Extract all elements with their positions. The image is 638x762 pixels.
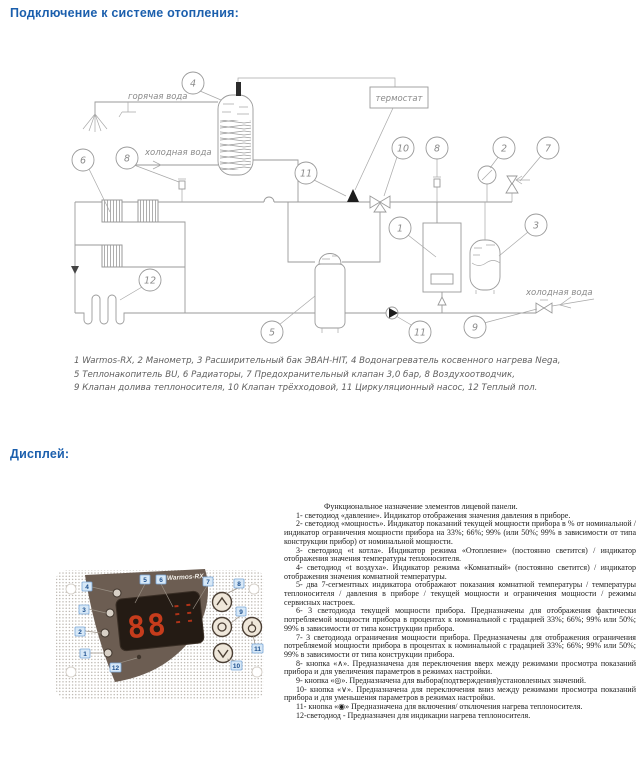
callout-7: 7 — [545, 144, 551, 155]
button-up — [213, 593, 232, 612]
led-t-boiler — [106, 609, 114, 617]
diagram-caption: 1 Warmos-RX, 2 Манометр, 3 Расширительны… — [74, 355, 579, 396]
screw-hole — [252, 667, 262, 677]
dhw-piping: горячая вода холодная вода — [83, 92, 218, 169]
display-digits: 88 — [126, 607, 170, 646]
screw-hole — [249, 584, 259, 594]
description-item-12: 12-светодиод - Предназначен для индикаци… — [284, 712, 636, 721]
caption-line-1: 1 Warmos-RX, 2 Манометр, 3 Расширительны… — [74, 355, 579, 369]
callout-3: 3 — [533, 221, 539, 232]
three-way-valve — [370, 196, 390, 212]
callout-5: 5 — [269, 328, 275, 339]
callout-2: 2 — [501, 144, 507, 155]
callout-10: 10 — [397, 144, 409, 155]
panel-callout-3: 3 — [82, 607, 86, 614]
callout-9: 9 — [472, 323, 478, 334]
panel-callout-10: 10 — [233, 663, 241, 670]
hot-water-label: горячая вода — [128, 92, 188, 102]
water-heater — [218, 82, 298, 202]
panel-callout-6: 6 — [159, 577, 163, 584]
button-heat-onoff — [243, 618, 262, 637]
screw-hole — [66, 584, 76, 594]
cold-water-bottom-label: холодная вода — [525, 288, 593, 298]
description-item-7: 7- 3 светодиода ограничения мощности при… — [284, 634, 636, 660]
safety-valve — [506, 176, 530, 202]
seven-segment-display: 88 — [115, 591, 204, 651]
panel-callout-7: 7 — [206, 579, 210, 586]
led-heating — [137, 655, 141, 659]
callout-11-upper: 11 — [300, 169, 312, 180]
caption-line-3: 9 Клапан долива теплоносителя, 10 Клапан… — [74, 382, 579, 396]
caption-line-2: 5 Теплонакопитель BU, 6 Радиаторы, 7 Пре… — [74, 369, 579, 383]
description-item-8: 8- кнопка «∧». Предназначена для переклю… — [284, 660, 636, 677]
heating-system-diagram: термостат горячая вода холодная вода — [58, 52, 633, 352]
callout-1: 1 — [397, 224, 403, 235]
control-panel-figure: Warmos-RX 88 — [55, 565, 265, 702]
heading-display: Дисплей: — [10, 447, 69, 461]
flow-arrow-down — [71, 266, 79, 274]
description-item-10: 10- кнопка «∨». Предназначена для перекл… — [284, 686, 636, 703]
cold-water-top-label: холодная вода — [144, 148, 212, 158]
led-power — [101, 629, 109, 637]
panel-callout-9: 9 — [239, 609, 243, 616]
description-item-2: 2- светодиод «мощность». Индикатор показ… — [284, 520, 636, 546]
boiler — [423, 202, 461, 313]
manometer — [478, 166, 496, 202]
panel-callout-8: 8 — [237, 581, 241, 588]
callout-8-left: 8 — [124, 154, 130, 165]
description-item-3: 3- светодиод «t котла». Индикатор режима… — [284, 547, 636, 564]
panel-callout-12: 12 — [112, 665, 120, 672]
panel-description: Функциональное назначение элементов лице… — [284, 503, 636, 721]
description-item-4: 4- светодиод «t воздуха». Индикатор режи… — [284, 564, 636, 581]
callout-8-right: 8 — [434, 144, 440, 155]
panel-callout-1: 1 — [83, 651, 87, 658]
panel-callout-2: 2 — [78, 629, 82, 636]
callout-6: 6 — [80, 156, 86, 167]
heading-connection: Подключение к системе отопления: — [10, 6, 239, 20]
callout-12: 12 — [144, 276, 156, 287]
radiators — [75, 200, 185, 313]
expansion-vessel — [470, 202, 500, 294]
description-item-6: 6- 3 светодиода текущей мощности прибора… — [284, 607, 636, 633]
button-select — [213, 618, 232, 637]
panel-callout-4: 4 — [85, 584, 89, 591]
panel-callout-11: 11 — [254, 646, 261, 653]
screw-hole — [66, 667, 76, 677]
callout-4: 4 — [190, 79, 196, 90]
panel-callout-5: 5 — [143, 577, 147, 584]
description-item-5: 5- два 7-сегментных индикатора отображаю… — [284, 581, 636, 607]
led-t-air — [113, 589, 121, 597]
thermostat-circuit: термостат — [238, 78, 428, 190]
thermostat-label: термостат — [376, 94, 424, 104]
led-pressure — [104, 649, 112, 657]
callout-11-lower: 11 — [414, 328, 426, 339]
